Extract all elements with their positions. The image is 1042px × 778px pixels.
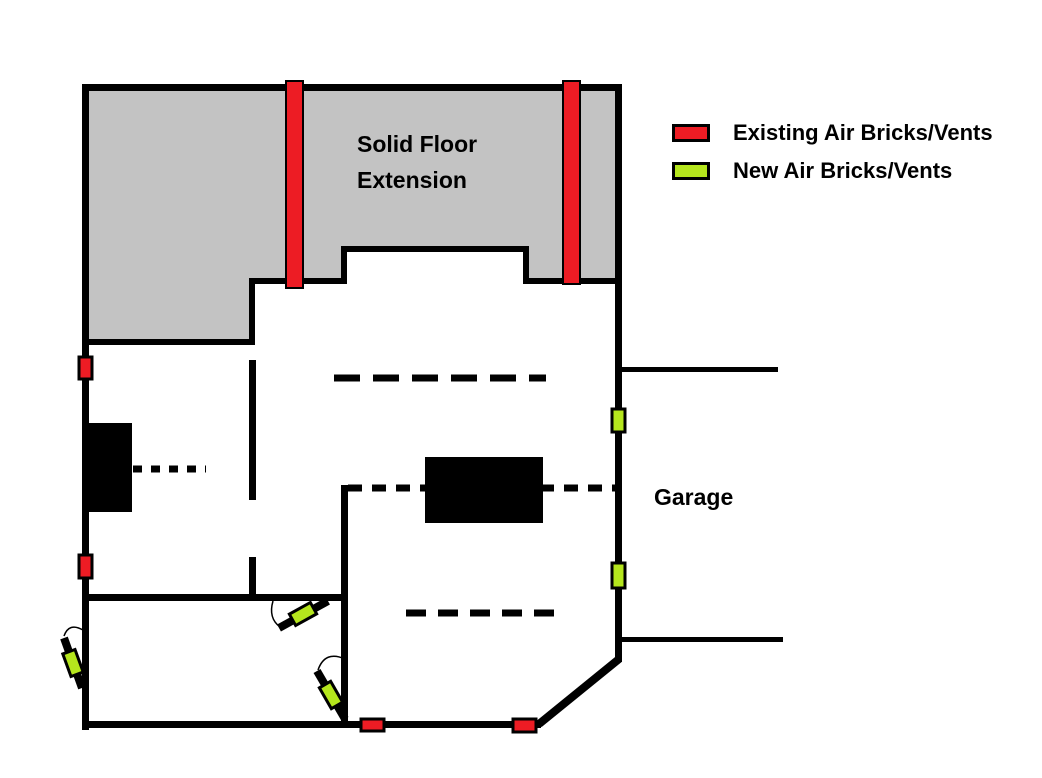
new-air-brick-swatch-icon	[672, 162, 710, 180]
new-vent-right-lower-icon	[612, 563, 625, 588]
new-vent-door-middle-icon	[289, 602, 316, 625]
solid-floor-extension-label-line2: Extension	[357, 162, 477, 198]
door-swing-arc	[272, 601, 280, 627]
existing-vent-left-lower-icon	[79, 555, 92, 578]
legend-item-existing: Existing Air Bricks/Vents	[672, 121, 993, 145]
legend-item-new: New Air Bricks/Vents	[672, 159, 993, 183]
existing-air-brick-duct-left-icon	[286, 81, 303, 288]
garage-top-wall	[621, 367, 778, 372]
floor-plan-canvas: Solid Floor Extension Garage Existing Ai…	[0, 0, 1042, 778]
new-vent-door-right-icon	[319, 681, 342, 708]
interior-wall-left-lower	[249, 557, 256, 598]
interior-wall-right-vertical	[341, 485, 348, 725]
existing-air-brick-duct-right-icon	[563, 81, 580, 284]
existing-vent-bottom-right-icon	[513, 719, 536, 732]
interior-wall-horizontal	[85, 594, 345, 601]
door-interior-vertical	[317, 656, 345, 719]
chimney-breast-middle	[425, 457, 543, 523]
existing-air-brick-swatch-icon	[672, 124, 710, 142]
legend: Existing Air Bricks/Vents New Air Bricks…	[672, 121, 993, 197]
chimney-breast-left	[85, 423, 132, 512]
solid-floor-extension-label-line1: Solid Floor	[357, 126, 477, 162]
door-interior-horizontal	[272, 601, 328, 628]
new-vent-right-upper-icon	[612, 409, 625, 432]
floor-plan-drawing	[0, 0, 1042, 778]
existing-vent-bottom-left-icon	[361, 719, 384, 731]
interior-wall-left-upper	[249, 360, 256, 500]
bottom-wall	[83, 721, 541, 728]
top-wall	[83, 84, 621, 91]
door-left-exterior	[63, 627, 83, 688]
garage-label: Garage	[654, 483, 733, 511]
existing-vent-left-upper-icon	[79, 357, 92, 379]
door-swing-arc	[64, 627, 83, 636]
solid-floor-extension-label: Solid Floor Extension	[357, 126, 477, 198]
left-wall	[82, 84, 89, 730]
legend-label-existing: Existing Air Bricks/Vents	[733, 120, 993, 146]
new-vent-door-left-icon	[63, 650, 83, 677]
solid-floor-extension-area	[85, 87, 619, 342]
door-swing-arc	[318, 656, 345, 670]
garage-bottom-wall	[621, 637, 783, 642]
legend-label-new: New Air Bricks/Vents	[733, 158, 952, 184]
diagonal-wall	[539, 659, 619, 724]
